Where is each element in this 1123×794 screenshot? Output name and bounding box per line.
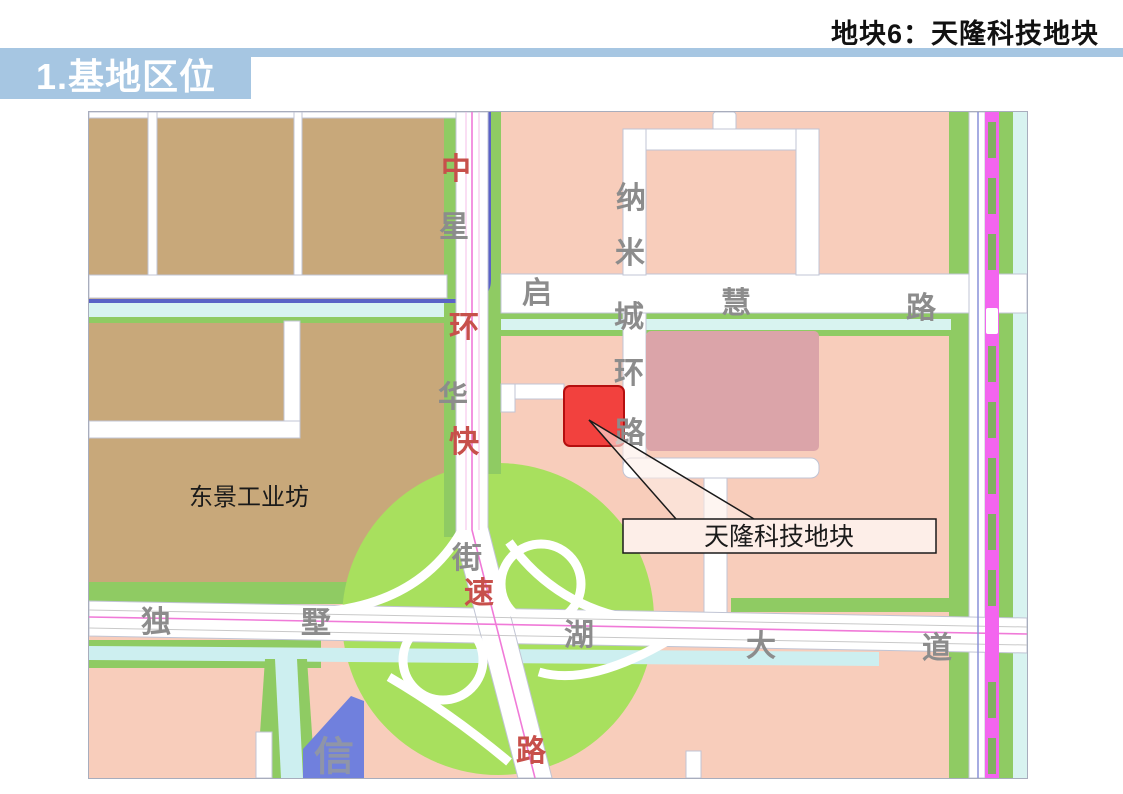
- section-banner: 1.基地区位: [0, 48, 251, 99]
- road-label-char: 慧: [721, 287, 751, 320]
- metro-line: [985, 112, 999, 778]
- location-map: 中 星 环 华 快 街 速 路 纳 米 城 环 路 启 慧 路 独 墅 湖 大 …: [88, 111, 1028, 779]
- road-label-char: 城: [614, 301, 644, 334]
- road-vertical-b: [294, 112, 302, 276]
- road-l-vertical: [284, 321, 300, 425]
- map-svg: 中 星 环 华 快 街 速 路 纳 米 城 环 路 启 慧 路 独 墅 湖 大 …: [89, 112, 1027, 778]
- road-label-char: 快: [449, 426, 480, 459]
- road-label-char: 速: [464, 577, 494, 610]
- slide: 地块6：天隆科技地块 1.基地区位: [0, 0, 1123, 794]
- road-label-char: 纳: [616, 182, 646, 215]
- road-label-char: 墅: [301, 607, 331, 640]
- road-vertical-a: [148, 112, 157, 276]
- road-top: [89, 112, 456, 118]
- section-title: 1.基地区位: [0, 48, 216, 100]
- road-label-char: 大: [746, 630, 776, 663]
- map-label-xin: 信: [314, 735, 354, 778]
- road-label-char: 湖: [564, 619, 594, 652]
- rose-block: [646, 331, 819, 451]
- road-label-char: 路: [516, 735, 547, 768]
- road-label-char: 华: [438, 381, 468, 414]
- road-label-char: 街: [451, 542, 482, 575]
- road-label-char: 环: [614, 357, 644, 390]
- road-label-char: 环: [449, 311, 479, 344]
- road-label-char: 道: [922, 632, 952, 665]
- road-stub: [256, 732, 272, 778]
- road-l-horizontal: [89, 421, 300, 438]
- road-right-column: [969, 112, 985, 778]
- road-label-char: 米: [615, 237, 645, 270]
- road-label-char: 中: [441, 153, 471, 186]
- callout-label: 天隆科技地块: [704, 523, 854, 551]
- slide-title: 地块6：天隆科技地块: [831, 12, 1099, 51]
- right-canal: [1013, 112, 1027, 778]
- road-qihui: [501, 274, 1027, 313]
- road-label-char: 启: [522, 277, 552, 310]
- road-mid-horizontal: [89, 275, 447, 298]
- road-label-char: 星: [439, 211, 469, 244]
- road-label-char: 独: [141, 606, 171, 639]
- road-label-char: 路: [906, 292, 937, 325]
- map-label-industrial-park: 东景工业坊: [189, 484, 309, 511]
